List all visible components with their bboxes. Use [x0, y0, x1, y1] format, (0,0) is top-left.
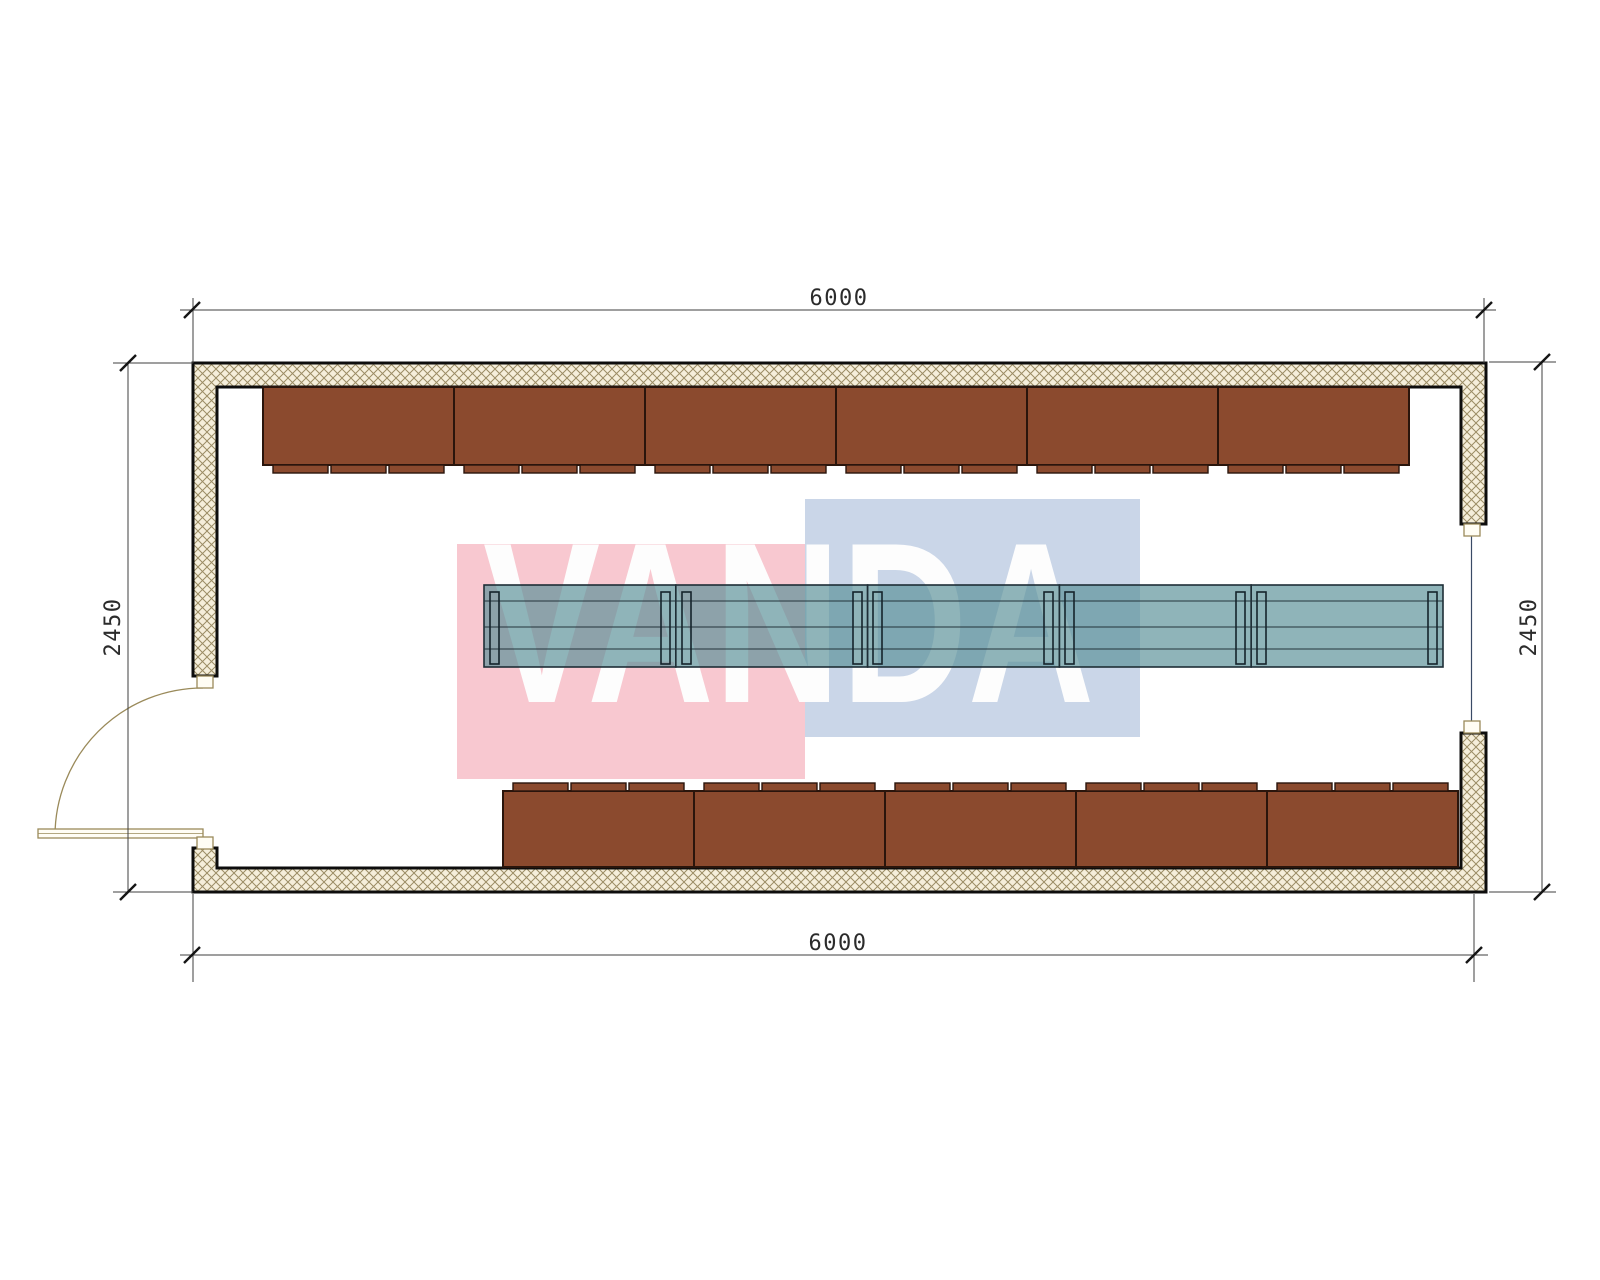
floor-plan-drawing: 6000 6000 2450 2450: [0, 0, 1600, 1280]
table-row: [484, 585, 1443, 667]
bench-foot: [1277, 783, 1332, 791]
dimension-label-top: 6000: [810, 286, 869, 311]
window-opening: [1464, 524, 1480, 733]
bench-unit: [263, 387, 454, 473]
bench-foot: [771, 465, 826, 473]
bench-foot: [571, 783, 626, 791]
bench-foot: [1153, 465, 1208, 473]
bench-foot: [464, 465, 519, 473]
table-unit: [484, 585, 676, 667]
bench-foot: [1228, 465, 1283, 473]
bench-foot: [953, 783, 1008, 791]
bench-foot: [273, 465, 328, 473]
bench-unit: [1027, 387, 1218, 473]
bench-foot: [629, 783, 684, 791]
bench-foot: [1344, 465, 1399, 473]
bench-unit: [1076, 783, 1267, 867]
bench-foot: [1011, 783, 1066, 791]
bench-foot: [904, 465, 959, 473]
bench-unit: [645, 387, 836, 473]
floor-plan-canvas: VANDA: [0, 0, 1600, 1280]
door-jamb-top: [197, 676, 213, 688]
bench-foot: [1393, 783, 1448, 791]
bench-row-top: [263, 387, 1409, 473]
bench-foot: [1037, 465, 1092, 473]
table-unit: [1059, 585, 1251, 667]
bench-unit: [503, 783, 694, 867]
bench-foot: [846, 465, 901, 473]
bench-foot: [762, 783, 817, 791]
bench-foot: [655, 465, 710, 473]
bench-foot: [389, 465, 444, 473]
window-jamb-bottom: [1464, 721, 1480, 733]
bench-foot: [513, 783, 568, 791]
bench-foot: [1086, 783, 1141, 791]
bench-row-bottom: [503, 783, 1458, 867]
table-unit: [1251, 585, 1443, 667]
bench-unit: [694, 783, 885, 867]
bench-foot: [713, 465, 768, 473]
door-swing-arc: [55, 688, 203, 836]
bench-foot: [1335, 783, 1390, 791]
table-unit: [676, 585, 868, 667]
bench-unit: [1267, 783, 1458, 867]
bench-unit: [836, 387, 1027, 473]
bench-unit: [454, 387, 645, 473]
bench-unit: [1218, 387, 1409, 473]
dimension-label-right: 2450: [1517, 598, 1542, 657]
bench-foot: [1286, 465, 1341, 473]
bench-foot: [962, 465, 1017, 473]
bench-foot: [1144, 783, 1199, 791]
dimension-label-left: 2450: [101, 598, 126, 657]
bench-foot: [522, 465, 577, 473]
door: [38, 676, 213, 849]
dimension-label-bottom: 6000: [809, 931, 868, 956]
bench-foot: [704, 783, 759, 791]
door-jamb-bottom: [197, 837, 213, 849]
table-unit: [868, 585, 1060, 667]
bench-foot: [820, 783, 875, 791]
bench-foot: [580, 465, 635, 473]
window-jamb-top: [1464, 524, 1480, 536]
bench-foot: [331, 465, 386, 473]
bench-foot: [1095, 465, 1150, 473]
bench-foot: [1202, 783, 1257, 791]
bench-foot: [895, 783, 950, 791]
bench-unit: [885, 783, 1076, 867]
